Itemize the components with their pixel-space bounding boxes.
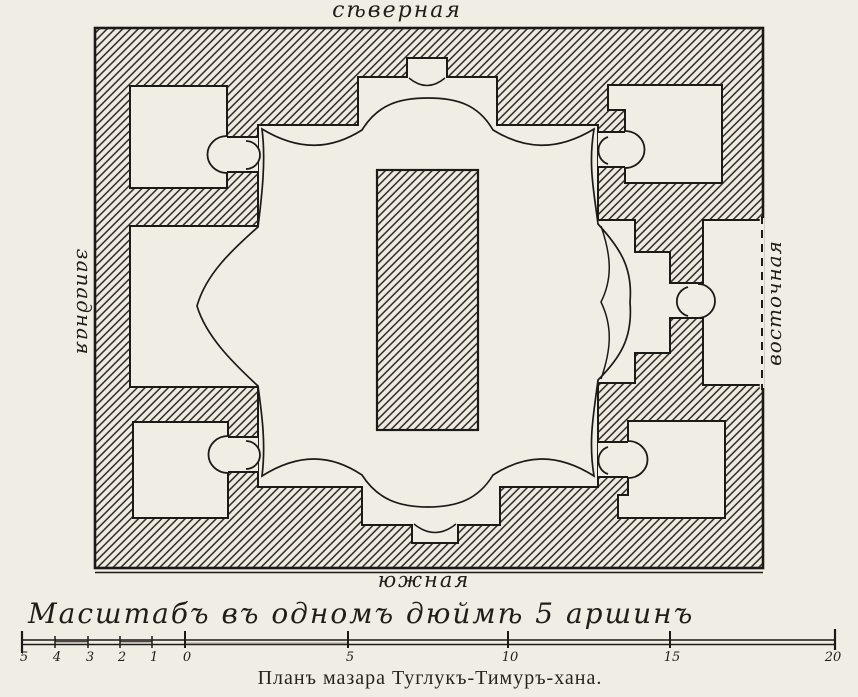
figure-caption: Планъ мазара Туглукъ-Тимуръ-хана. <box>258 667 603 689</box>
label-east-facade: восточная <box>762 240 786 366</box>
scale-tick-label: 5 <box>20 650 28 665</box>
central-tomb-cenotaph <box>377 170 478 430</box>
label-south-facade: южная <box>378 568 471 592</box>
scale-tick-label: 2 <box>117 650 126 665</box>
scale-tick-label: 15 <box>664 650 681 665</box>
corner-room-northwest <box>130 86 227 188</box>
corner-room-southwest <box>133 422 228 518</box>
scale-tick-label: 4 <box>52 650 61 665</box>
scale-bar <box>22 629 835 653</box>
scale-tick-label: 10 <box>502 650 519 665</box>
scale-caption: Масштабъ въ одномъ дюймѣ 5 аршинъ <box>27 597 694 630</box>
label-west-facade: западная <box>72 249 96 356</box>
scanned-plan-page: сѣверная южная западная восточная Масшта… <box>0 0 858 697</box>
scale-bar-numbers: 5 4 3 2 1 0 5 10 15 20 <box>20 650 841 665</box>
mazar-plan-drawing: сѣверная южная западная восточная Масшта… <box>0 0 858 697</box>
scale-tick-label: 3 <box>86 650 94 665</box>
scale-tick-label: 20 <box>824 650 842 665</box>
scale-tick-label: 5 <box>346 650 354 665</box>
scale-tick-label: 1 <box>150 650 158 665</box>
label-north-facade: сѣверная <box>332 0 462 23</box>
scale-tick-label: 0 <box>183 650 191 665</box>
